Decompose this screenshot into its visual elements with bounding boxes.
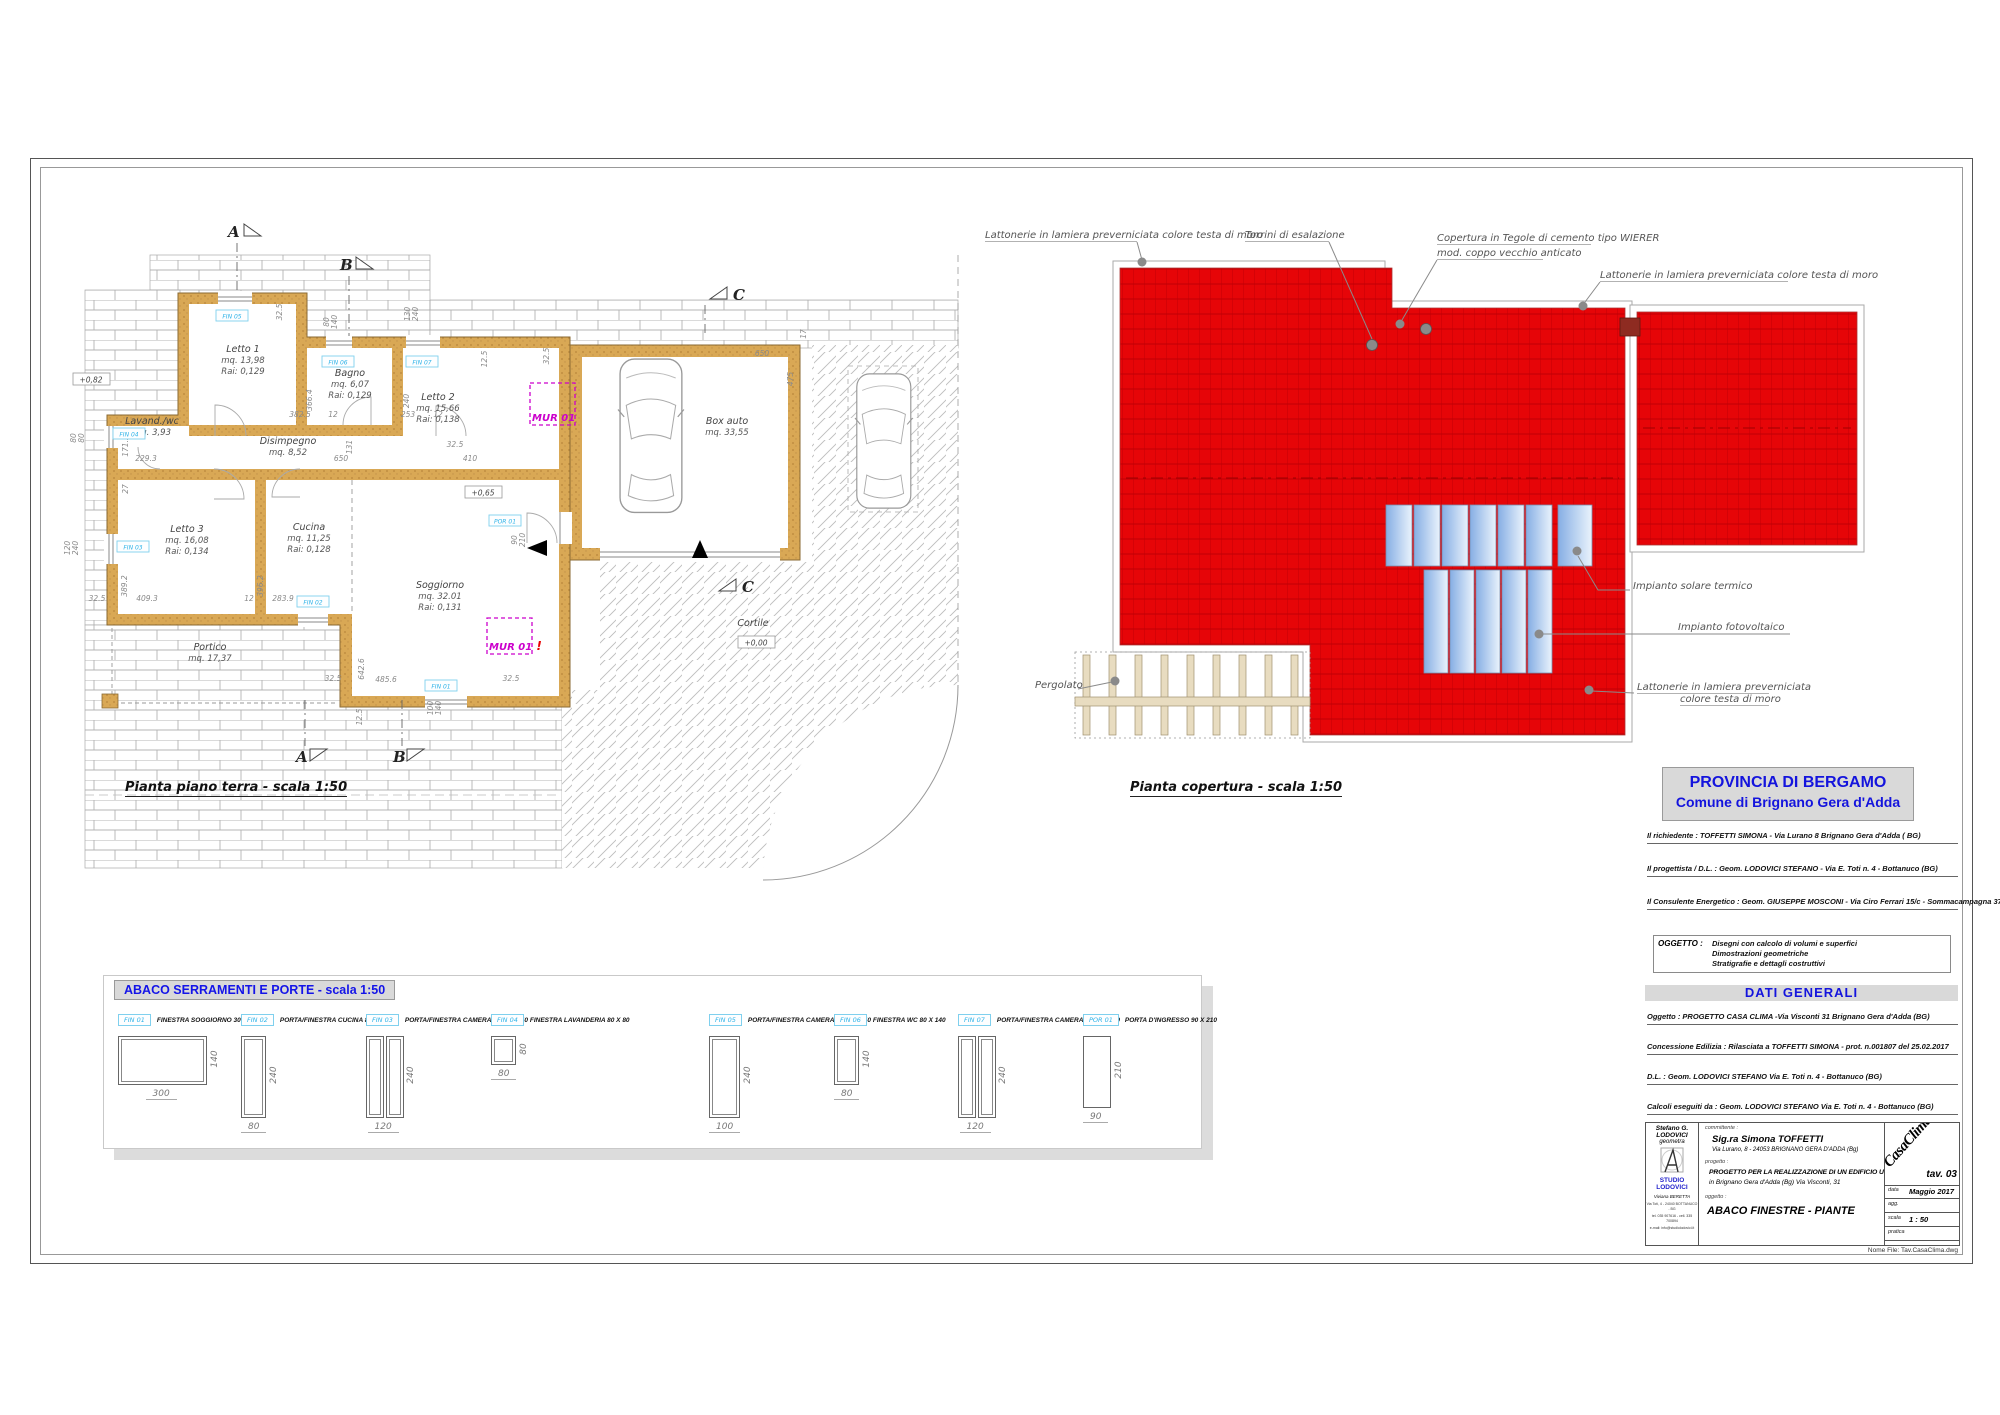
leader-dot xyxy=(1111,677,1120,686)
oggetto2-value: ABACO FINESTRE - PIANTE xyxy=(1707,1205,1855,1217)
abaco-item-tag: FIN 06 xyxy=(834,1014,867,1026)
studio-name: Stefano G. LODOVICI xyxy=(1646,1125,1698,1139)
leader-dot xyxy=(1573,547,1582,556)
tav-number: tav. 03 xyxy=(1926,1169,1957,1180)
leader-dot xyxy=(1579,302,1588,311)
svg-text:MUR 01 !: MUR 01 ! xyxy=(489,639,542,653)
room-label: Letto 1mq. 13,98Rai: 0,129 xyxy=(221,344,265,377)
dimension-label: 131 xyxy=(345,440,354,454)
section-marker: A xyxy=(226,223,261,241)
roof-annotation: mod. coppo vecchio anticato xyxy=(1437,248,1581,260)
roof-annotation: Pergolato xyxy=(1035,680,1083,691)
pergolato-beam xyxy=(1265,655,1272,735)
svg-text:Copertura in Tegole di cemento: Copertura in Tegole di cemento tipo WIER… xyxy=(1437,233,1659,244)
svg-text:Letto 2: Letto 2 xyxy=(421,392,454,403)
width-dimension: 100 xyxy=(709,1122,740,1133)
roof-annotation: Impianto solare termico xyxy=(1633,581,1753,592)
meta-key: data xyxy=(1888,1187,1899,1193)
dimension-label: 140 xyxy=(434,701,443,716)
svg-text:Rai: 0,129: Rai: 0,129 xyxy=(328,391,371,401)
abaco-item-tag: FIN 01 xyxy=(118,1014,151,1026)
oggetto-box: OGGETTO : Disegni con calcolo di volumi … xyxy=(1653,935,1951,973)
roof-plan xyxy=(1075,242,1864,742)
pergolato-beam xyxy=(1291,655,1298,735)
window-inner-frame xyxy=(961,1039,973,1115)
svg-text:Letto 3: Letto 3 xyxy=(170,524,203,535)
height-dimension: 80 xyxy=(519,1029,529,1069)
pv-panel xyxy=(1386,505,1412,566)
committente-name: Sig.ra Simona TOFFETTI xyxy=(1712,1134,1823,1145)
floor-plan-title: Pianta piano terra - scala 1:50 xyxy=(125,780,347,797)
pergolato-beam xyxy=(1109,655,1116,735)
svg-text:mod. coppo vecchio anticato: mod. coppo vecchio anticato xyxy=(1437,248,1581,259)
dimension-label: 12.5 xyxy=(480,350,489,367)
abaco-item-label: FINESTRA LAVANDERIA 80 X 80 xyxy=(530,1017,630,1024)
svg-text:mq. 33,55: mq. 33,55 xyxy=(705,428,748,438)
window-tag: FIN 06 xyxy=(322,356,354,367)
height-dimension: 210 xyxy=(1114,1050,1124,1090)
svg-text:Rai: 0,129: Rai: 0,129 xyxy=(221,367,264,377)
svg-text:+0,65: +0,65 xyxy=(472,489,495,498)
car-garage xyxy=(618,359,684,512)
dimension-label: 12.5 xyxy=(355,708,364,725)
width-dimension: 90 xyxy=(1083,1112,1108,1123)
title-block-line: D.L. : Geom. LODOVICI STEFANO Via E. Tot… xyxy=(1647,1072,1958,1085)
window-drawing xyxy=(491,1036,516,1065)
dimension-label: 80 xyxy=(77,433,86,443)
oggetto2-label: oggetto : xyxy=(1705,1194,1726,1200)
svg-text:Lavand./wc: Lavand./wc xyxy=(125,416,180,427)
room-label: Soggiornomq. 32.01Rai: 0,131 xyxy=(416,580,464,613)
studio-logo xyxy=(1655,1146,1689,1176)
meta-value: Maggio 2017 xyxy=(1909,1187,1954,1196)
width-dimension: 300 xyxy=(146,1089,177,1100)
title-block-header: PROVINCIA DI BERGAMO Comune di Brignano … xyxy=(1662,767,1914,821)
svg-text:Impianto fotovoltaico: Impianto fotovoltaico xyxy=(1678,622,1784,633)
meta-cell: CasaClima tav. 03 dataMaggio 2017agg.sca… xyxy=(1885,1123,1959,1245)
window-tag: FIN 04 xyxy=(113,428,145,439)
dimension-label: 650 xyxy=(755,349,770,358)
svg-text:A: A xyxy=(226,223,240,241)
pv-panel xyxy=(1502,570,1526,673)
roof-annotation: Copertura in Tegole di cemento tipo WIER… xyxy=(1437,233,1659,245)
window-tag: FIN 03 xyxy=(117,541,149,552)
dimension-label: 240 xyxy=(71,541,80,556)
width-dimension: 80 xyxy=(491,1069,516,1080)
leader-dot xyxy=(1138,258,1147,267)
abaco-item-tag: FIN 03 xyxy=(366,1014,399,1026)
svg-text:Rai: 0,134: Rai: 0,134 xyxy=(165,547,208,557)
svg-text:FIN 01: FIN 01 xyxy=(431,684,450,691)
dimension-label: 229.3 xyxy=(135,454,157,463)
studio-contact-3: e-mail: info@studiolodovici.it xyxy=(1646,1226,1698,1231)
window-inner-frame xyxy=(981,1039,993,1115)
pv-panel xyxy=(1442,505,1468,566)
car-driveway xyxy=(855,374,913,508)
window-drawing xyxy=(834,1036,859,1085)
window-drawing xyxy=(241,1036,266,1118)
abaco-item: FIN 04FINESTRA LAVANDERIA 80 X 808080 xyxy=(491,1014,630,1026)
height-dimension: 240 xyxy=(998,1055,1008,1095)
garage-door-opening xyxy=(600,546,780,562)
dimension-label: 210 xyxy=(518,533,527,548)
torrino-2 xyxy=(1421,324,1432,335)
window-drawing xyxy=(386,1036,404,1118)
progetto-line1: PROGETTO PER LA REALIZZAZIONE DI UN EDIF… xyxy=(1709,1169,1885,1176)
title-block-line: Oggetto : PROGETTO CASA CLIMA -Via Visco… xyxy=(1647,1012,1958,1025)
window-tag: FIN 01 xyxy=(425,680,457,691)
committente-label: committente : xyxy=(1705,1125,1738,1131)
abaco-item-tag: FIN 04 xyxy=(491,1014,524,1026)
window-inner-frame xyxy=(244,1039,263,1115)
svg-text:POR 01: POR 01 xyxy=(494,519,516,526)
dimension-label: 32.5 xyxy=(275,303,284,320)
svg-text:mq. 11,25: mq. 11,25 xyxy=(287,534,330,544)
roof-plan-title: Pianta copertura - scala 1:50 xyxy=(1130,780,1342,797)
level-label: +0,82 xyxy=(73,373,110,385)
solar-thermal-panel xyxy=(1558,505,1592,566)
window-inner-frame xyxy=(369,1039,381,1115)
svg-text:Letto 1: Letto 1 xyxy=(226,344,259,355)
room-label: Letto 3mq. 16,08Rai: 0,134 xyxy=(165,524,209,557)
svg-text:C: C xyxy=(742,578,754,596)
svg-text:Lattonerie in lamiera preverni: Lattonerie in lamiera preverniciata xyxy=(1637,682,1811,693)
title-block-line: Concessione Edilizia : Rilasciata a TOFF… xyxy=(1647,1042,1958,1055)
pv-panel xyxy=(1476,570,1500,673)
dimension-label: 240 xyxy=(411,307,420,322)
leader-dot xyxy=(1535,630,1544,639)
window-drawing xyxy=(978,1036,996,1118)
pv-panel xyxy=(1450,570,1474,673)
studio-collab: Viviana BERETTA xyxy=(1646,1194,1698,1199)
abaco-panel: ABACO SERRAMENTI E PORTE - scala 1:50 FI… xyxy=(103,975,1202,1149)
svg-text:C: C xyxy=(733,286,745,304)
room-label: Cucinamq. 11,25Rai: 0,128 xyxy=(287,522,331,555)
svg-text:A: A xyxy=(294,748,308,766)
svg-text:FIN 04: FIN 04 xyxy=(119,432,138,439)
torrino-1 xyxy=(1367,340,1378,351)
svg-text:Disimpegno: Disimpegno xyxy=(260,436,317,447)
svg-text:Box auto: Box auto xyxy=(706,416,749,427)
window-inner-frame xyxy=(494,1039,513,1062)
portico-column xyxy=(102,694,118,708)
width-dimension: 120 xyxy=(368,1122,399,1133)
pv-panel xyxy=(1528,570,1552,673)
window-drawing xyxy=(366,1036,384,1118)
abaco-item-label: FINESTRA WC 80 X 140 xyxy=(873,1017,946,1024)
abaco-item: FIN 06FINESTRA WC 80 X 14080140 xyxy=(834,1014,946,1026)
casaclima-logo: CasaClima xyxy=(1885,1123,1936,1171)
meta-key: pratica xyxy=(1888,1229,1905,1235)
svg-text:Soggiorno: Soggiorno xyxy=(416,580,464,591)
leader-line xyxy=(1585,282,1600,302)
roof-annotation: Impianto fotovoltaico xyxy=(1678,622,1784,633)
roof-annotation: Lattonerie in lamiera preverniciata colo… xyxy=(1600,270,1878,282)
meta-value: 1 : 50 xyxy=(1909,1215,1928,1224)
dimension-label: 485.6 xyxy=(375,675,397,684)
window-tag: FIN 07 xyxy=(406,356,438,367)
dimension-label: 27 xyxy=(121,484,130,494)
meta-row: dataMaggio 2017 xyxy=(1885,1185,1959,1199)
file-name: Nome File: Tav.CasaClima.dwg xyxy=(1868,1247,1958,1254)
abaco-item-tag: FIN 02 xyxy=(241,1014,274,1026)
meta-row: agg. xyxy=(1885,1199,1959,1213)
studio-brand: STUDIO LODOVICI xyxy=(1646,1177,1698,1191)
abaco-item-tag: POR 01 xyxy=(1083,1014,1119,1026)
svg-text:mq. 13,98: mq. 13,98 xyxy=(221,356,265,366)
roof-annotation: colore testa di moro xyxy=(1680,694,1781,706)
svg-text:FIN 02: FIN 02 xyxy=(303,600,322,607)
pv-panel xyxy=(1498,505,1524,566)
dimension-label: 32.5 xyxy=(447,440,464,449)
svg-text:Lattonerie in lamiera preverni: Lattonerie in lamiera preverniciata colo… xyxy=(985,230,1263,241)
leader-dot xyxy=(1396,320,1405,329)
dimension-label: 12 xyxy=(244,594,254,603)
svg-text:B: B xyxy=(339,256,353,274)
project-cell: committente : Sig.ra Simona TOFFETTI Via… xyxy=(1699,1123,1885,1245)
pergolato-beam xyxy=(1135,655,1142,735)
window-tag: FIN 05 xyxy=(216,310,248,321)
roof-annotation: Torrini di esalazione xyxy=(1245,230,1345,242)
window-drawing xyxy=(709,1036,740,1118)
svg-text:MUR 01: MUR 01 xyxy=(532,413,575,424)
room-label: Cortile xyxy=(737,618,768,629)
level-label: +0,00 xyxy=(738,636,775,648)
svg-text:mq. 32.01: mq. 32.01 xyxy=(418,592,461,602)
pv-panel xyxy=(1414,505,1440,566)
title-block: PROVINCIA DI BERGAMO Comune di Brignano … xyxy=(1645,767,1958,1267)
abaco-item: POR 01PORTA D'INGRESSO 90 X 21090210 xyxy=(1083,1014,1217,1026)
window-inner-frame xyxy=(121,1039,204,1082)
window-drawing xyxy=(118,1036,207,1085)
dimension-label: 475 xyxy=(786,372,795,387)
svg-text:FIN 03: FIN 03 xyxy=(123,545,142,552)
svg-text:B: B xyxy=(392,748,406,766)
pergolato-beam xyxy=(1083,655,1090,735)
pergolato-beam xyxy=(1187,655,1194,735)
title-block-line: Il richiedente : TOFFETTI SIMONA - Via L… xyxy=(1647,831,1958,844)
dimension-label: 12 xyxy=(328,410,338,419)
window-inner-frame xyxy=(389,1039,401,1115)
dimension-label: 389.2 xyxy=(120,575,129,597)
svg-text:colore testa di moro: colore testa di moro xyxy=(1680,694,1781,705)
svg-text:mq. 8,52: mq. 8,52 xyxy=(269,448,307,458)
studio-contact-1: Via Toti, 4 - 24040 BOTTANUCO - BG xyxy=(1646,1202,1698,1211)
pergolato xyxy=(1075,652,1310,738)
dimension-label: 253 xyxy=(401,410,416,419)
svg-text:Cortile: Cortile xyxy=(737,618,768,629)
window-drawing xyxy=(958,1036,976,1118)
studio-cell: Stefano G. LODOVICI geometra STUDIO LODO… xyxy=(1646,1123,1699,1245)
abaco-item-label: PORTA D'INGRESSO 90 X 210 xyxy=(1125,1017,1217,1024)
meta-row: scala1 : 50 xyxy=(1885,1213,1959,1227)
window-tag: FIN 02 xyxy=(297,596,329,607)
svg-text:+0,00: +0,00 xyxy=(745,639,768,648)
roof-annotation: Lattonerie in lamiera preverniciata colo… xyxy=(985,230,1263,242)
dimension-label: 240 xyxy=(402,394,411,409)
dimension-label: 32.5 xyxy=(325,674,342,683)
svg-text:Rai: 0,131: Rai: 0,131 xyxy=(418,603,461,613)
room-label: Letto 2mq. 15,66Rai: 0,138 xyxy=(416,392,460,425)
svg-text:Lattonerie in lamiera preverni: Lattonerie in lamiera preverniciata colo… xyxy=(1600,270,1878,281)
abaco-title: ABACO SERRAMENTI E PORTE - scala 1:50 xyxy=(114,980,395,1000)
dati-generali-bar: DATI GENERALI xyxy=(1645,985,1958,1001)
width-dimension: 80 xyxy=(241,1122,266,1133)
window-tag: POR 01 xyxy=(489,515,521,526)
dimension-label: 642.6 xyxy=(357,658,366,680)
dimension-label: 140 xyxy=(330,315,339,330)
svg-text:Bagno: Bagno xyxy=(335,368,365,379)
dimension-label: 396.2 xyxy=(256,575,265,597)
roof-annotation: Lattonerie in lamiera preverniciata xyxy=(1637,682,1811,694)
window-inner-frame xyxy=(712,1039,737,1115)
progetto-label: progetto : xyxy=(1705,1159,1728,1165)
casaclima-box: CasaClima tav. 03 xyxy=(1885,1123,1959,1186)
title-block-line: Calcoli eseguiti da : Geom. LODOVICI STE… xyxy=(1647,1102,1958,1115)
studio-role: geometra xyxy=(1646,1139,1698,1145)
committente-address: Via Lurano, 8 - 24053 BRIGNANO GERA D'AD… xyxy=(1712,1147,1858,1153)
dimension-label: 650 xyxy=(334,454,349,463)
height-dimension: 240 xyxy=(743,1055,753,1095)
garage-interior xyxy=(582,357,788,548)
dimension-label: 410 xyxy=(463,454,478,463)
room-disimpegno xyxy=(189,436,475,469)
svg-text:Cucina: Cucina xyxy=(293,522,326,533)
courtyard-front xyxy=(600,562,812,707)
svg-text:FIN 07: FIN 07 xyxy=(412,360,431,367)
svg-text:FIN 06: FIN 06 xyxy=(328,360,347,367)
width-dimension: 80 xyxy=(834,1089,859,1100)
pergolato-crossbeam xyxy=(1075,697,1310,706)
oggetto-lines: Disegni con calcolo di volumi e superfic… xyxy=(1712,939,1857,969)
pv-panel xyxy=(1424,570,1448,673)
comune-title: Comune di Brignano Gera d'Adda xyxy=(1663,794,1913,810)
abaco-item-tag: FIN 07 xyxy=(958,1014,991,1026)
roof-connector xyxy=(1620,318,1640,336)
svg-text:+0,82: +0,82 xyxy=(80,376,103,385)
height-dimension: 240 xyxy=(269,1055,279,1095)
height-dimension: 240 xyxy=(406,1055,416,1095)
svg-text:Rai: 0,128: Rai: 0,128 xyxy=(287,545,331,555)
meta-row: pratica xyxy=(1885,1227,1959,1241)
svg-text:Torrini di esalazione: Torrini di esalazione xyxy=(1245,230,1345,241)
height-dimension: 140 xyxy=(862,1039,872,1079)
progetto-line2: in Brignano Gera d'Adda (Bg) Via Viscont… xyxy=(1709,1179,1840,1186)
svg-text:mq. 6,07: mq. 6,07 xyxy=(331,380,370,390)
oggetto-line: Disegni con calcolo di volumi e superfic… xyxy=(1712,939,1857,949)
height-dimension: 140 xyxy=(210,1039,220,1079)
svg-text:Portico: Portico xyxy=(194,642,227,653)
meta-key: scala xyxy=(1888,1215,1901,1221)
provincia-title: PROVINCIA DI BERGAMO xyxy=(1663,774,1913,792)
dimension-label: 409.3 xyxy=(136,594,158,603)
pergolato-beam xyxy=(1239,655,1246,735)
dimension-label: 32.5 xyxy=(542,347,551,364)
title-block-line: Il progettista / D.L. : Geom. LODOVICI S… xyxy=(1647,864,1958,877)
title-block-line: Il Consulente Energetico : Geom. GIUSEPP… xyxy=(1647,897,1958,910)
pv-panel xyxy=(1526,505,1552,566)
dimension-label: 12 xyxy=(433,410,443,419)
leader-line xyxy=(1137,242,1142,260)
dimension-label: 366.4 xyxy=(305,389,314,411)
dimension-label: 17 xyxy=(799,329,808,339)
level-label: +0,65 xyxy=(465,486,502,498)
oggetto-label: OGGETTO : xyxy=(1658,939,1712,969)
pergolato-beam xyxy=(1213,655,1220,735)
pv-panel xyxy=(1470,505,1496,566)
svg-text:Pergolato: Pergolato xyxy=(1035,680,1083,691)
svg-text:FIN 05: FIN 05 xyxy=(222,314,241,321)
window-inner-frame xyxy=(837,1039,856,1082)
meta-key: agg. xyxy=(1888,1201,1899,1207)
oggetto-line: Stratigrafie e dettagli costruttivi xyxy=(1712,959,1857,969)
oggetto-line: Dimostrazioni geometriche xyxy=(1712,949,1857,959)
leader-dot xyxy=(1585,686,1594,695)
title-block-bottom: Stefano G. LODOVICI geometra STUDIO LODO… xyxy=(1645,1122,1960,1246)
svg-text:mq. 17,37: mq. 17,37 xyxy=(188,654,232,664)
dimension-label: 283.9 xyxy=(272,594,294,603)
svg-text:Impianto solare termico: Impianto solare termico xyxy=(1633,581,1753,592)
dimension-label: 32.5 xyxy=(89,594,106,603)
studio-contact-2: tel. 035 907616 - cell. 335 700894 xyxy=(1646,1214,1698,1223)
abaco-item-tag: FIN 05 xyxy=(709,1014,742,1026)
dimension-label: 32.5 xyxy=(503,674,520,683)
width-dimension: 120 xyxy=(960,1122,991,1133)
window-drawing xyxy=(1083,1036,1111,1108)
svg-text:mq. 16,08: mq. 16,08 xyxy=(165,536,209,546)
pergolato-beam xyxy=(1161,655,1168,735)
